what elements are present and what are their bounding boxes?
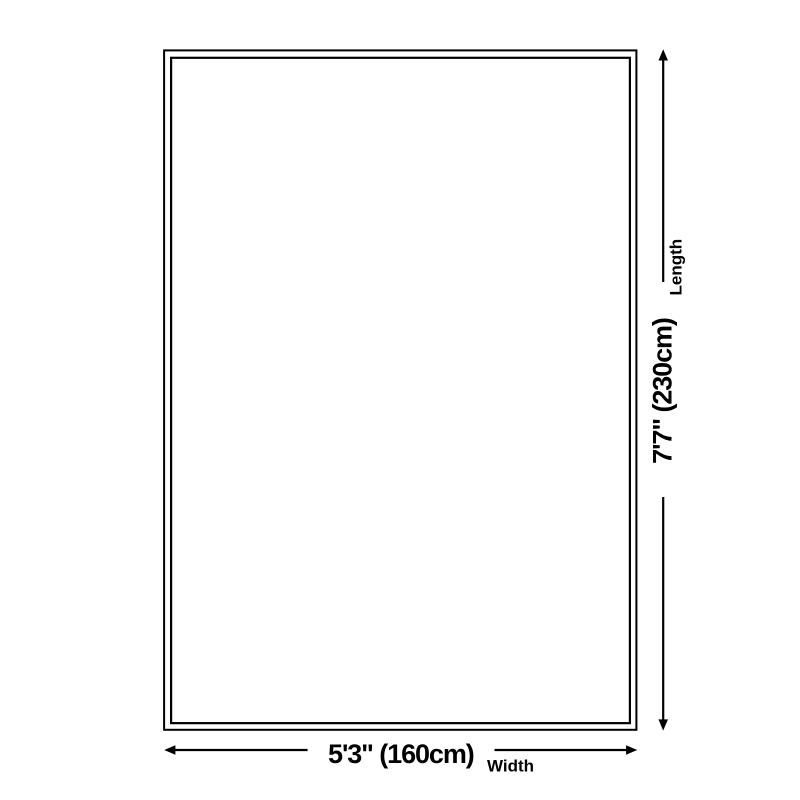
svg-text:5'3" (160cm): 5'3" (160cm) [328,739,474,769]
svg-text:Length: Length [667,239,686,296]
svg-text:7'7" (230cm): 7'7" (230cm) [648,318,678,464]
svg-text:Width: Width [487,757,534,776]
